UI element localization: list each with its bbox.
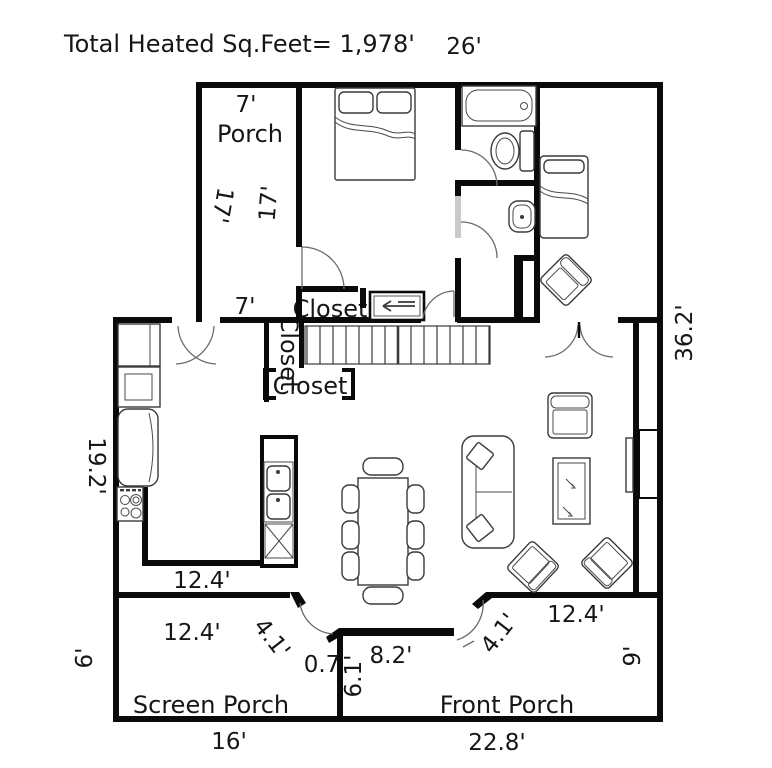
dim-screen-porch-length: 16'	[211, 729, 247, 755]
dim-top-width: 26'	[446, 34, 482, 60]
dim-front-porch-width: 12.4'	[547, 602, 605, 628]
armchair	[548, 393, 592, 438]
wall-porch-left	[196, 82, 202, 322]
accent-chair-right	[580, 536, 634, 590]
door-arc-stairhall	[423, 291, 454, 318]
dim-front-porch-length: 22.8'	[468, 730, 526, 756]
dim-porch-width-bottom: 7'	[235, 294, 256, 320]
wall-right	[657, 82, 663, 722]
wall-south-angled	[290, 592, 306, 608]
wall-screenporch-east	[337, 630, 343, 722]
stairs	[305, 326, 490, 364]
room-porch: Porch	[217, 120, 283, 148]
dim-left-side: 19.2'	[83, 437, 109, 495]
refrigerator	[118, 409, 158, 486]
den-chair	[539, 253, 593, 307]
wall-stair-left	[299, 322, 304, 368]
mirror-table	[553, 458, 590, 524]
room-front-porch: Front Porch	[440, 691, 574, 719]
dim-porch-height: 17'	[206, 185, 238, 225]
wall-landing-connector	[514, 255, 540, 261]
wall-frontporch-top	[486, 592, 663, 598]
fireplace	[626, 430, 658, 498]
door-arc-bedroom	[302, 247, 344, 289]
french-door-left	[545, 325, 578, 357]
wall-top	[196, 82, 663, 88]
door-arc-kitchen-right	[178, 326, 216, 364]
dim-entry-width: 8.2'	[370, 643, 413, 669]
accent-chair-left	[506, 540, 560, 594]
room-screen-porch: Screen Porch	[133, 691, 289, 719]
dim-right-side: 36.2'	[672, 304, 698, 362]
french-door-right	[580, 325, 613, 357]
kitchen-cabinet-upper	[118, 324, 160, 366]
single-bed	[540, 156, 588, 238]
wall-bath-west-a	[455, 82, 461, 150]
sofa	[462, 436, 514, 548]
dim-screen-porch-width: 12.4'	[163, 620, 221, 646]
dining-table	[358, 478, 408, 585]
door-arc-hall	[461, 222, 497, 258]
stair-arrow-box	[370, 292, 424, 320]
kitchen-oven	[118, 367, 160, 407]
wall-bedroom-south	[296, 286, 358, 292]
dim-entry-jog: 0.7	[304, 652, 341, 678]
floor-plan-drawing: Total Heated Sq.Feet= 1,978' 26' 7' Porc…	[0, 0, 772, 768]
pocket-door	[455, 196, 461, 238]
wall-closet1-left	[296, 286, 302, 322]
wall-closet1-right-stub	[360, 288, 366, 308]
door-arc-screenporch	[300, 603, 333, 634]
wall-porch-bedroom	[296, 82, 302, 247]
dim-bedroom-height: 17'	[255, 185, 284, 223]
cooktop	[117, 487, 143, 521]
wall-main-top-a	[113, 317, 172, 323]
dim-front-door: 4.1'	[476, 609, 523, 659]
dim-screen-porch-depth: 6'	[72, 648, 98, 669]
dim-screen-door: 4.1'	[248, 614, 295, 664]
door-arc-kitchen-left	[176, 326, 214, 364]
bathroom-sink	[509, 201, 535, 232]
wall-bottom	[113, 716, 663, 722]
wall-bath-west-c	[455, 258, 461, 322]
dim-entry-depth: 6.1'	[341, 655, 367, 698]
wall-south-a	[113, 592, 290, 598]
wall-landing-column	[514, 255, 523, 322]
toilet	[491, 131, 534, 171]
page-title: Total Heated Sq.Feet= 1,978'	[63, 30, 415, 58]
dim-kitchen-width: 12.4'	[173, 568, 231, 594]
bathtub	[462, 86, 536, 126]
double-bed	[335, 88, 415, 180]
wall-main-top-d	[618, 317, 663, 323]
dim-porch-width: 7'	[236, 92, 257, 118]
wall-main-top-c	[457, 317, 540, 323]
floor-plan-page: Total Heated Sq.Feet= 1,978' 26' 7' Porc…	[0, 0, 772, 768]
label-closet-stairs: Closet	[273, 372, 348, 400]
dim-front-porch-depth: 9'	[620, 646, 646, 667]
wall-vestibule-south	[326, 628, 454, 643]
